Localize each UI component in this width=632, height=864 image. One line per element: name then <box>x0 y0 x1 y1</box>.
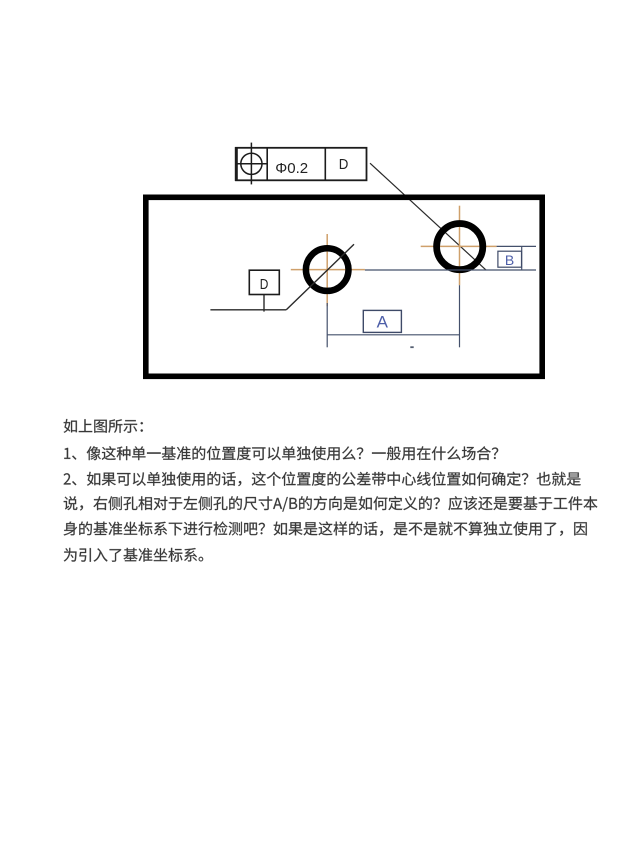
svg-text:D: D <box>339 156 349 173</box>
svg-text:B: B <box>505 252 514 268</box>
svg-text:A: A <box>377 313 389 332</box>
svg-text:Φ0.2: Φ0.2 <box>275 160 308 177</box>
svg-text:D: D <box>260 276 269 293</box>
